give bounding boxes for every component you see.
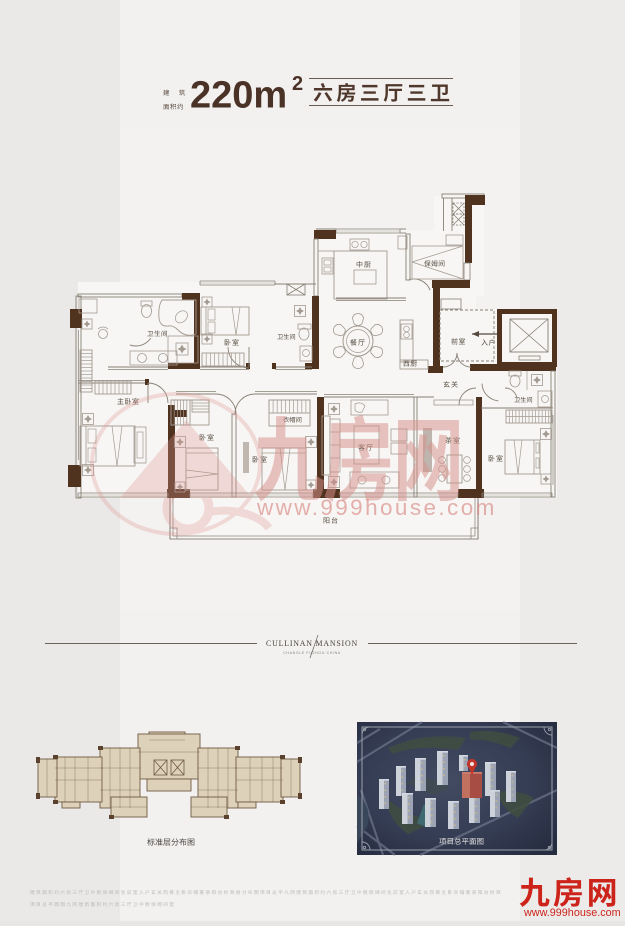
- svg-text:CULLINAN MANSION: CULLINAN MANSION: [266, 639, 358, 648]
- svg-text:www.999house.com: www.999house.com: [256, 495, 497, 520]
- svg-text:2: 2: [292, 73, 303, 95]
- svg-text:www.999house.com: www.999house.com: [523, 907, 621, 919]
- svg-text:220m: 220m: [190, 75, 287, 117]
